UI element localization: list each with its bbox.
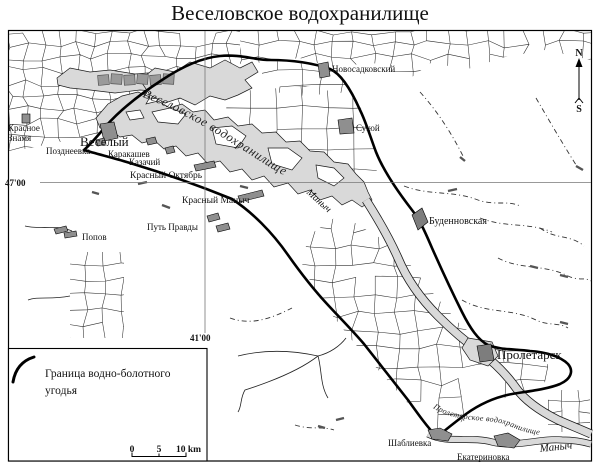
- longitude-label: 41'00: [190, 333, 211, 343]
- legend-text-line2: угодья: [45, 385, 78, 397]
- marker-sukhoi: [338, 118, 354, 134]
- legend-text-line1: Граница водно-болотного: [45, 368, 171, 380]
- marker-novosadkovskii: [318, 62, 330, 78]
- label-krasnyi-oktyabr: Красный Октябрь: [130, 170, 203, 181]
- label-kazachii: Казачий: [129, 157, 160, 167]
- label-novosadkovskii: Новосадковский: [332, 64, 395, 74]
- map-page: Веселовское водохранилище: [0, 0, 600, 468]
- label-sukhoi: Сухой: [356, 123, 380, 133]
- latitude-label: 47'00: [5, 178, 26, 188]
- map-title: Веселовское водохранилище: [171, 1, 429, 25]
- label-krasnyi-manych: Красный Маныч: [182, 195, 250, 206]
- label-popov: Попов: [82, 232, 107, 242]
- map-canvas: Веселовское водохранилище: [0, 0, 600, 468]
- south-label: S: [576, 104, 582, 115]
- north-label: N: [575, 48, 583, 59]
- label-proletarsk: Пролетарск: [497, 347, 562, 362]
- marker-proletarsk: [477, 344, 494, 362]
- marker-krasnoe-znamya: [22, 114, 30, 123]
- label-budennovskaya: Буденновская: [429, 216, 487, 227]
- label-veselyi: Веселый: [80, 134, 129, 149]
- legend: Граница водно-болотного угодья 0 5 10 km: [9, 349, 208, 462]
- label-put-pravdy: Путь Правды: [147, 222, 198, 232]
- label-ekaterinovka: Екатериновка: [457, 452, 510, 462]
- scale-tick10-label: 10 km: [176, 445, 201, 455]
- label-shablievka: Шаблиевка: [388, 438, 431, 448]
